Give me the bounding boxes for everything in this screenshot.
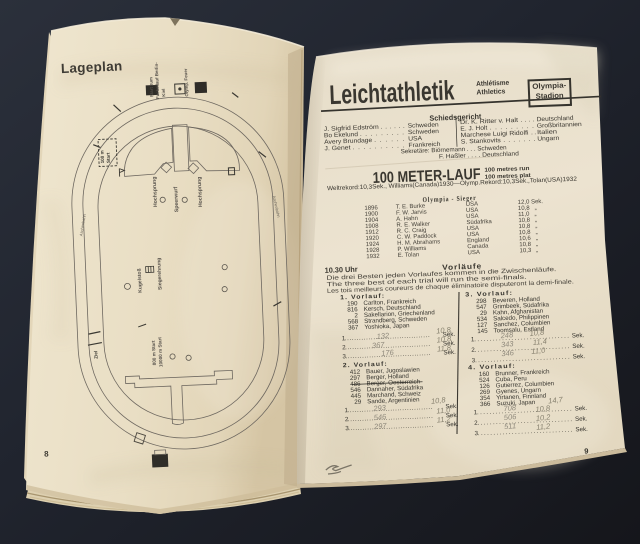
svg-text:Olympia-: Olympia- xyxy=(532,81,567,91)
svg-text:Sek.: Sek. xyxy=(572,332,585,339)
svg-text:14,7: 14,7 xyxy=(548,395,564,406)
svg-text:J. Genet: J. Genet xyxy=(324,144,351,152)
svg-text:Athlétisme: Athlétisme xyxy=(476,80,509,88)
svg-text:Kiel: Kiel xyxy=(161,88,166,96)
svg-text:9: 9 xyxy=(584,446,589,455)
svg-text:29854729534127145: 29854729534127145 xyxy=(476,298,488,335)
svg-text:11,2: 11,2 xyxy=(436,414,452,425)
svg-text:11,2: 11,2 xyxy=(536,421,552,432)
svg-text:Sek.: Sek. xyxy=(575,415,588,422)
svg-text:Sek.: Sek. xyxy=(575,405,588,412)
svg-text:Sek.: Sek. xyxy=(575,426,588,433)
svg-text:11,0: 11,0 xyxy=(531,345,547,356)
svg-text:Ziel: Ziel xyxy=(93,351,98,359)
svg-text:. . . . . . .: . . . . . . . xyxy=(503,136,536,144)
svg-text:Athletics: Athletics xyxy=(476,88,505,96)
svg-text:Sek.: Sek. xyxy=(573,353,586,360)
svg-text:Start zum: Start zum xyxy=(148,77,154,97)
svg-text:176: 176 xyxy=(381,348,395,358)
svg-text:10,8: 10,8 xyxy=(430,395,446,406)
svg-text:Bauer, JugoslawienBerger, Holl: Bauer, JugoslawienBerger, HollandBerger,… xyxy=(366,366,424,405)
svg-text:Sek.: Sek. xyxy=(572,343,585,350)
svg-text:346: 346 xyxy=(501,348,515,358)
svg-text:160524126269354366: 160524126269354366 xyxy=(479,371,491,408)
svg-text:297: 297 xyxy=(373,421,388,431)
svg-text:11,8: 11,8 xyxy=(436,343,452,354)
svg-text:100 m: 100 m xyxy=(99,150,105,163)
svg-text:Kugelstoß: Kugelstoß xyxy=(137,268,144,293)
svg-text:511: 511 xyxy=(504,421,517,431)
svg-text:Ungarn: Ungarn xyxy=(537,135,560,143)
svg-text:Speerwurf: Speerwurf xyxy=(173,186,180,212)
svg-text:Lageplan: Lageplan xyxy=(61,58,123,76)
svg-text:Start: Start xyxy=(106,152,111,163)
